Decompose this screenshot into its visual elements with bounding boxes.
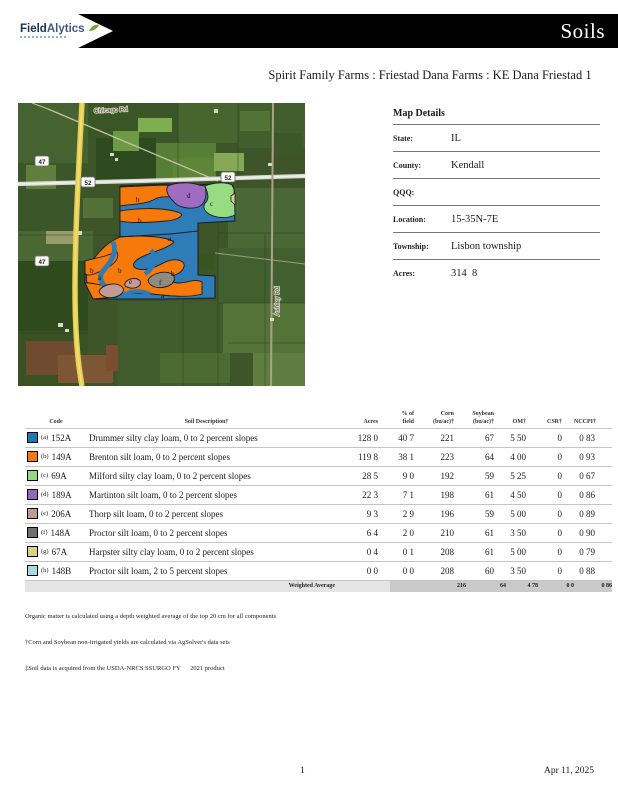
detail-label: Location: — [393, 215, 451, 224]
logo-text-alytics: Alytics — [47, 23, 85, 35]
weighted-average-label: Weighted Average — [25, 580, 390, 592]
page-number: 1 — [300, 766, 305, 776]
color-swatch — [27, 565, 38, 576]
detail-value: 15-35N-7E — [451, 214, 498, 225]
color-swatch — [27, 432, 38, 443]
weighted-nccpi: 0 86 — [574, 580, 612, 592]
soil-code-cell: (d)189A — [25, 489, 87, 500]
soil-code-cell: (c)69A — [25, 470, 87, 481]
svg-text:47: 47 — [39, 159, 46, 166]
weighted-csr: 0 0 — [538, 580, 574, 592]
color-swatch — [27, 508, 38, 519]
color-swatch — [27, 451, 38, 462]
color-swatch — [27, 527, 38, 538]
col-header-description: Soil Description† — [87, 397, 326, 428]
table-header-row: Code Soil Description† Acres % offield C… — [25, 397, 612, 428]
soil-region-b-upper2 — [120, 209, 182, 223]
col-header-acres: Acres — [326, 397, 390, 428]
logo-text-field: Field — [20, 23, 47, 35]
soil-description: Drummer silty clay loam, 0 to 2 percent … — [87, 428, 326, 447]
route-shield-47-upper: 47 — [35, 156, 49, 166]
detail-row-state: State: IL — [393, 125, 600, 152]
table-row: (g)67A Harpster silty clay loam, 0 to 2 … — [25, 542, 612, 561]
soils-report-page: Soils FieldAlytics Spirit Family Farms :… — [0, 0, 618, 800]
detail-row-county: County: Kendall — [393, 152, 600, 179]
col-header-code: Code — [25, 397, 87, 428]
svg-text:52: 52 — [85, 180, 92, 187]
soil-description: Harpster silty clay loam, 0 to 2 percent… — [87, 542, 326, 561]
detail-label: State: — [393, 134, 451, 143]
route-shield-52-left: 52 — [81, 177, 95, 187]
fieldalytics-logo: FieldAlytics — [20, 23, 100, 38]
soil-map-svg: b b d c a b a b e f b a 47 47 — [18, 103, 305, 386]
soil-description: Brenton silt loam, 0 to 2 percent slopes — [87, 447, 326, 466]
svg-text:d: d — [187, 192, 191, 200]
col-header-nccpi: NCCPI† — [574, 397, 612, 428]
soil-code-cell: (e)206A — [25, 508, 87, 519]
col-header-pct-field: % offield — [390, 397, 426, 428]
detail-label: Acres: — [393, 269, 451, 278]
table-row: (e)206A Thorp silt loam, 0 to 2 percent … — [25, 504, 612, 523]
table-row: (d)189A Martinton silt loam, 0 to 2 perc… — [25, 485, 612, 504]
footnote-organic-matter: Organic matter is calculated using a dep… — [25, 613, 276, 622]
svg-text:47: 47 — [39, 259, 46, 266]
soil-region-c-milford — [204, 183, 235, 218]
soil-description: Proctor silt loam, 0 to 2 percent slopes — [87, 523, 326, 542]
detail-value: Lisbon township — [451, 241, 521, 252]
soil-description: Proctor silt loam, 2 to 5 percent slopes — [87, 561, 326, 580]
svg-text:e: e — [129, 278, 132, 286]
svg-text:c: c — [210, 200, 213, 208]
weighted-soybean: 64 — [466, 580, 506, 592]
soil-table: Code Soil Description† Acres % offield C… — [25, 397, 612, 592]
svg-text:52: 52 — [225, 175, 232, 182]
footnotes: Organic matter is calculated using a dep… — [25, 595, 276, 692]
soil-description: Milford silty clay loam, 0 to 2 percent … — [87, 466, 326, 485]
weighted-om: 4 78 — [506, 580, 538, 592]
table-row: (c)69A Milford silty clay loam, 0 to 2 p… — [25, 466, 612, 485]
table-row: (b)149A Brenton silt loam, 0 to 2 percen… — [25, 447, 612, 466]
logo-tagline-line — [20, 36, 66, 38]
detail-label: Township: — [393, 242, 451, 251]
svg-text:b: b — [136, 196, 140, 204]
color-swatch — [27, 546, 38, 557]
soil-code-cell: (a)152A — [25, 432, 87, 443]
detail-row-qqq: QQQ: — [393, 179, 600, 206]
detail-label: QQQ: — [393, 188, 451, 197]
table-row: (a)152A Drummer silty clay loam, 0 to 2 … — [25, 428, 612, 447]
leaf-icon — [88, 23, 100, 33]
page-title: Spirit Family Farms : Friestad Dana Farm… — [268, 68, 591, 83]
svg-text:b: b — [171, 270, 175, 278]
route-shield-47-lower: 47 — [35, 256, 49, 266]
route-shield-52-right: 52 — [221, 172, 235, 182]
color-swatch — [27, 489, 38, 500]
col-header-soybean: Soybean(bu/ac)† — [466, 397, 506, 428]
color-swatch — [27, 470, 38, 481]
weighted-corn: 216 — [426, 580, 466, 592]
soil-code-cell: (h)148B — [25, 565, 87, 576]
svg-text:b: b — [138, 217, 142, 225]
footnote-yields: †Corn and Soybean non-irrigated yields a… — [25, 639, 276, 648]
soil-code-cell: (b)149A — [25, 451, 87, 462]
map-details-title: Map Details — [393, 108, 600, 125]
detail-row-location: Location: 15-35N-7E — [393, 206, 600, 233]
footnote-ssurgo: ‡Soil data is acquired from the USDA-NRC… — [25, 665, 276, 674]
detail-label: County: — [393, 161, 451, 170]
detail-row-township: Township: Lisbon township — [393, 233, 600, 260]
soil-code-cell: (g)67A — [25, 546, 87, 557]
detail-row-acres: Acres: 314 8 — [393, 260, 600, 286]
report-type-title: Soils — [560, 14, 605, 48]
road-label-ashley: Ashley Rd — [274, 286, 281, 316]
soil-code-cell: (f)148A — [25, 527, 87, 538]
col-header-csr: CSR† — [538, 397, 574, 428]
table-row: (h)148B Proctor silt loam, 2 to 5 percen… — [25, 561, 612, 580]
detail-value: Kendall — [451, 160, 484, 171]
soil-description: Martinton silt loam, 0 to 2 percent slop… — [87, 485, 326, 504]
col-header-corn: Corn(bu/ac)† — [426, 397, 466, 428]
soil-map: b b d c a b a b e f b a 47 47 — [18, 103, 305, 386]
detail-value: 314 8 — [451, 268, 477, 279]
svg-text:b: b — [118, 267, 122, 275]
map-details-panel: Map Details State: IL County: Kendall QQ… — [393, 108, 600, 286]
table-row: (f)148A Proctor silt loam, 0 to 2 percen… — [25, 523, 612, 542]
col-header-om: OM† — [506, 397, 538, 428]
detail-value: IL — [451, 133, 461, 144]
weighted-average-row: Weighted Average 216 64 4 78 0 0 0 86 — [25, 580, 612, 592]
soil-description: Thorp silt loam, 0 to 2 percent slopes — [87, 504, 326, 523]
report-date: Apr 11, 2025 — [544, 766, 594, 776]
svg-text:b: b — [90, 267, 94, 275]
